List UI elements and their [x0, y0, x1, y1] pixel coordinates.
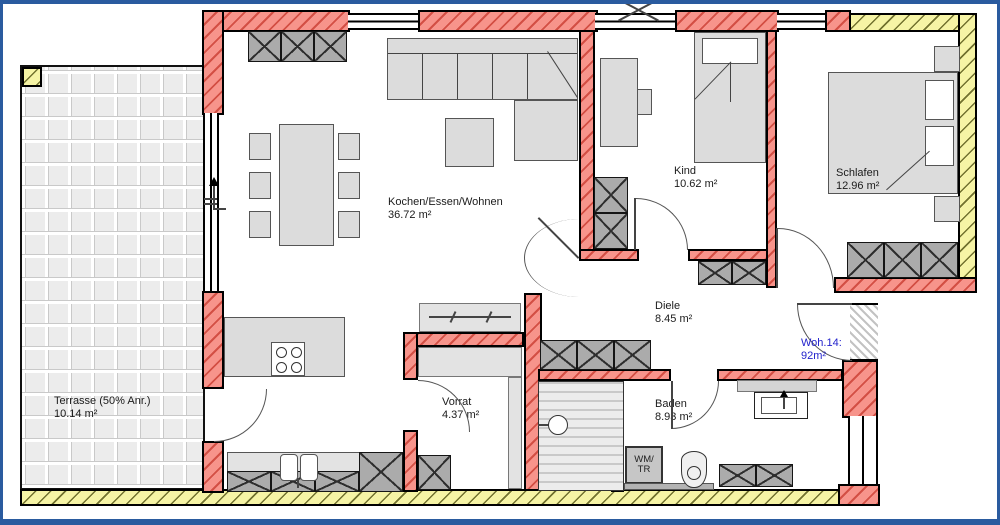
wall-top-1 — [202, 10, 350, 32]
dining-table — [279, 124, 334, 246]
hall-cabinet — [732, 261, 766, 285]
cooktop-burner — [276, 362, 287, 373]
washbasin-tap-arrow-icon — [780, 390, 788, 397]
wardrobe-kind — [594, 213, 628, 249]
wall-kind-bottom-right — [688, 249, 768, 261]
desk-chair — [637, 89, 652, 115]
floor-plan: Terrasse (50% Anr.) 10.14 m² Woh.14: — [0, 0, 1000, 525]
window-kind — [595, 13, 677, 30]
kitchen-base-cabinet — [227, 471, 271, 492]
sink-faucet — [297, 478, 299, 488]
wall-closet-bottom — [403, 332, 524, 347]
pantry-shelf — [508, 377, 522, 489]
room-label-kind: Kind 10.62 m² — [674, 165, 717, 191]
sideboard — [248, 31, 281, 62]
pillow-kind — [702, 38, 758, 64]
wall-living-kind — [579, 30, 595, 254]
entrance-door-leaf — [797, 303, 852, 305]
cooktop-burner — [291, 362, 302, 373]
wall-entrance-post — [842, 360, 878, 418]
dining-chair — [249, 133, 271, 160]
wall-kind-bottom-left — [579, 249, 639, 261]
sofa-seam — [527, 54, 528, 99]
vanity-shelf — [737, 380, 817, 392]
entry-arrow-foot — [214, 208, 226, 210]
washbasin-tap — [783, 396, 785, 409]
pantry-cabinet — [418, 455, 451, 490]
entrance-threshold — [850, 303, 878, 361]
glass-door-split-mark — [204, 198, 217, 200]
wall-bath-top-left — [538, 369, 671, 381]
wardrobe-kind — [594, 177, 628, 213]
dining-chair — [249, 211, 271, 238]
terrace-door-arc — [214, 389, 267, 442]
wall-top-4 — [825, 10, 851, 32]
cooktop-burner — [276, 347, 287, 358]
wall-left-mid — [202, 291, 224, 389]
washbasin-inner — [761, 397, 797, 414]
wall-right-existing — [958, 13, 977, 293]
dining-chair — [338, 211, 360, 238]
window-schlafen — [777, 13, 827, 30]
wardrobe-schlafen — [921, 242, 958, 278]
wall-corner-bottom-right — [838, 484, 880, 506]
wall-schlafen-bottom — [834, 277, 977, 293]
nightstand — [934, 196, 960, 222]
wall-left-bottom — [202, 441, 224, 493]
window-living — [348, 13, 420, 30]
sofa-seam — [492, 54, 493, 99]
terrace-post — [22, 67, 42, 87]
dining-chair — [249, 172, 271, 199]
washer-dryer: WM/ TR — [625, 446, 663, 484]
coat-rail — [429, 316, 511, 318]
glass-door-split-mark — [204, 203, 217, 205]
pillow-schlafen — [925, 126, 954, 166]
kitchen-base-cabinet — [359, 452, 403, 492]
sofa — [387, 38, 578, 100]
dining-chair — [338, 133, 360, 160]
entry-arrow-shaft — [213, 186, 215, 210]
vorrat-door-arc — [418, 380, 470, 432]
room-label-terrasse: Terrasse (50% Anr.) 10.14 m² — [54, 395, 151, 421]
shower-head-icon — [548, 415, 568, 435]
desk — [600, 58, 638, 147]
hall-wardrobe — [577, 340, 614, 370]
sofa-chaise — [514, 100, 578, 161]
bath-door-leaf — [671, 381, 673, 429]
hall-wardrobe — [614, 340, 651, 370]
hall-wardrobe — [540, 340, 577, 370]
window-bath — [848, 416, 878, 486]
sink-basin — [300, 454, 318, 481]
schlafen-door-leaf — [776, 228, 778, 288]
wall-vorrat-left-top — [403, 332, 418, 380]
sofa-seam — [457, 54, 458, 99]
room-label-wohnen: Kochen/Essen/Wohnen 36.72 m² — [388, 196, 503, 222]
pillow-schlafen — [925, 80, 954, 120]
terrace-glass-door — [203, 113, 219, 291]
nightstand — [934, 46, 960, 72]
sink-basin — [280, 454, 298, 481]
bath-cabinet — [719, 464, 756, 487]
bath-cabinet — [756, 464, 793, 487]
wall-left-top — [202, 10, 224, 115]
wall-bottom-existing — [20, 489, 840, 506]
wall-top-2 — [418, 10, 598, 32]
apartment-label: Woh.14: 92m² — [801, 337, 842, 363]
hall-cabinet — [698, 261, 732, 285]
kind-door-leaf — [634, 198, 636, 250]
bath-door-arc — [671, 381, 719, 429]
wall-top-3 — [675, 10, 779, 32]
schlafen-door-arc — [778, 228, 834, 288]
kitchen-base-cabinet — [315, 471, 359, 492]
shower — [538, 381, 624, 491]
sofa-seam — [422, 54, 423, 99]
cooktop-burner — [291, 347, 302, 358]
sideboard — [314, 31, 347, 62]
dining-chair — [338, 172, 360, 199]
pantry-shelf — [418, 347, 522, 377]
blanket-fold-line — [730, 62, 731, 102]
kind-door-arc — [636, 198, 688, 250]
room-label-schlafen: Schlafen 12.96 m² — [836, 167, 879, 193]
wall-vorrat-left-bottom — [403, 430, 418, 492]
wardrobe-schlafen — [884, 242, 921, 278]
toilet-bowl — [687, 466, 701, 480]
room-label-diele: Diele 8.45 m² — [655, 300, 692, 326]
coffee-table — [445, 118, 494, 167]
wardrobe-schlafen — [847, 242, 884, 278]
terrace-floor — [20, 65, 205, 490]
sideboard — [281, 31, 314, 62]
entry-arrow-head-icon — [209, 177, 219, 186]
